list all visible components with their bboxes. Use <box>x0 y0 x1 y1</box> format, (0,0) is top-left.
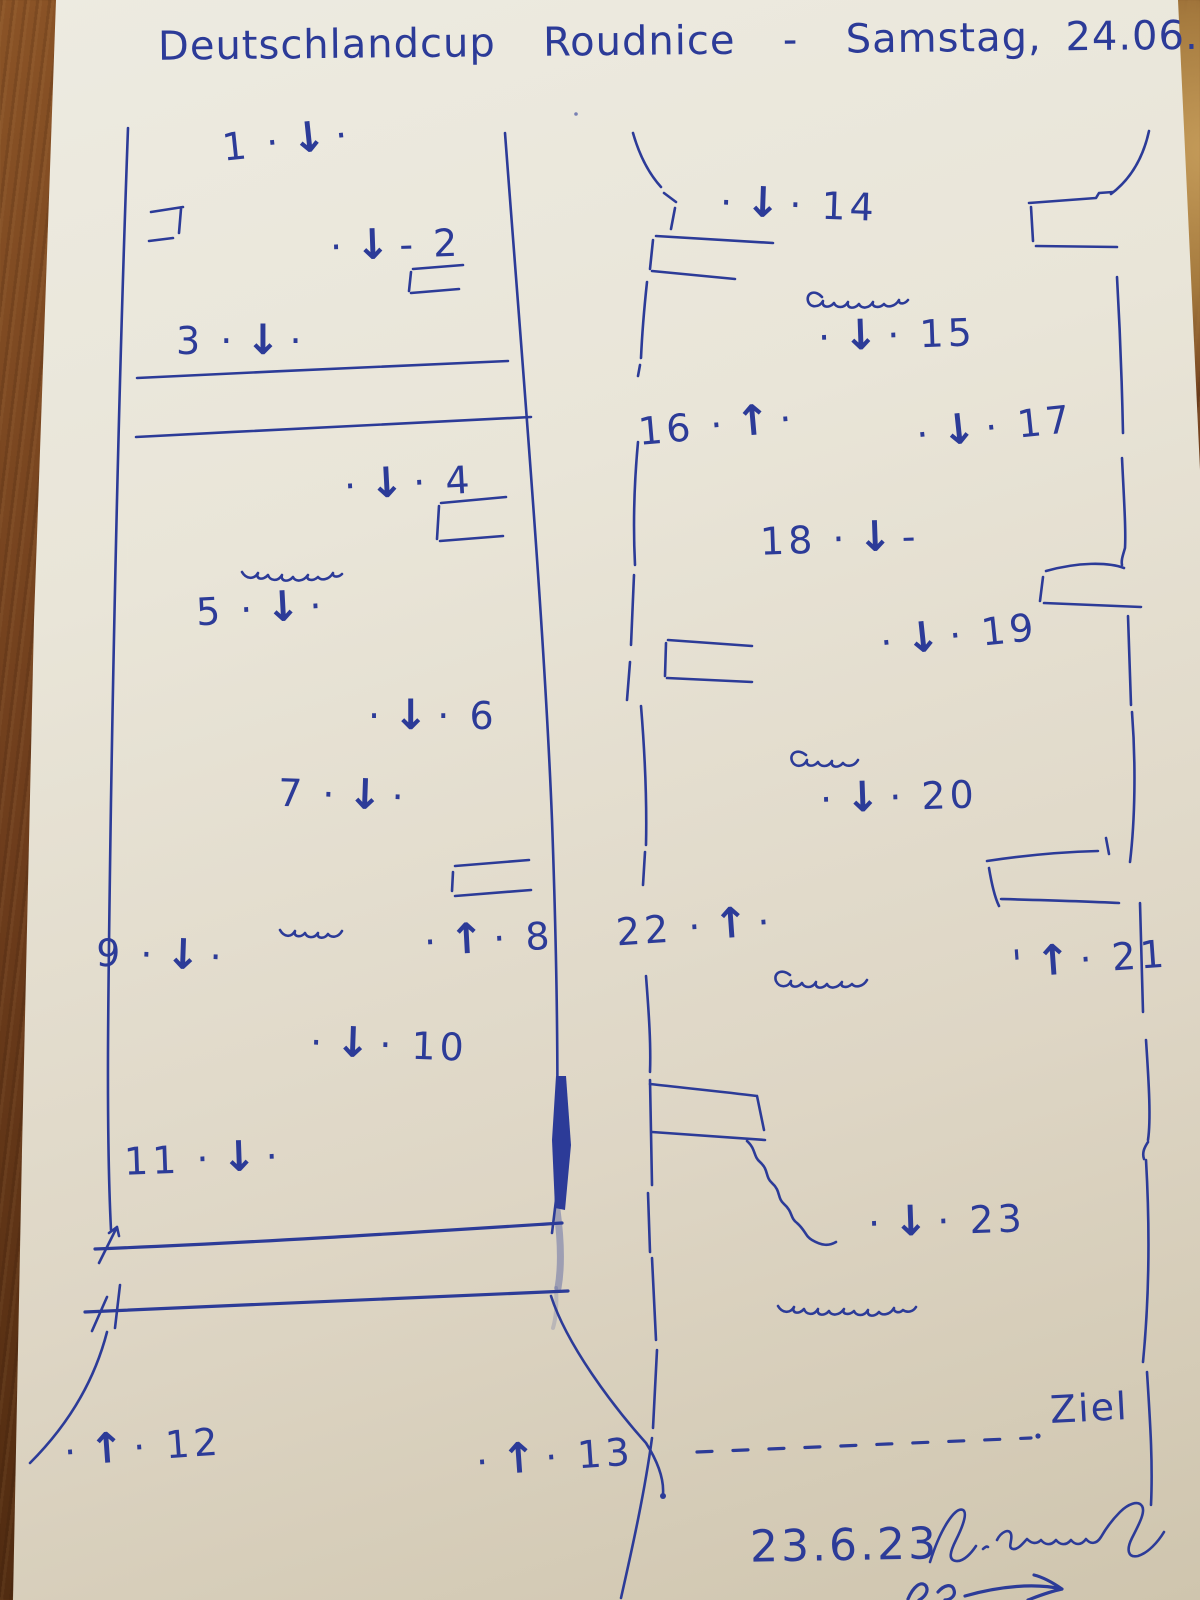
gate-bracket <box>1029 192 1117 247</box>
downstream-arrow-icon: ↓ <box>368 461 405 505</box>
gate-number-suffix: - 2 <box>399 222 462 268</box>
gate-number-prefix: ' <box>1011 942 1028 987</box>
weir-line <box>136 417 531 437</box>
gate-number-suffix: · 4 <box>412 459 475 506</box>
gate-number-suffix: · 6 <box>437 695 497 739</box>
plan-date: 23.6.23 <box>750 1518 940 1572</box>
gate-number-suffix: · 13 <box>544 1431 635 1481</box>
gate-bracket <box>650 1084 765 1140</box>
gate-number-prefix: 7 · <box>277 772 339 818</box>
dashed-finish-line <box>697 1438 1031 1452</box>
gate-15: ·↓· 15 <box>817 311 976 360</box>
gate-number-prefix: 11 · <box>123 1138 213 1185</box>
gate-number-suffix: · 23 <box>937 1197 1027 1244</box>
gate-11: 11 ·↓· <box>123 1135 282 1184</box>
gate-number-suffix: · <box>209 936 227 980</box>
ink-drip <box>553 1288 556 1328</box>
downstream-arrow-icon: ↓ <box>892 1200 929 1243</box>
gate-bracket <box>987 838 1119 906</box>
signature-scribble <box>930 1503 1164 1562</box>
pen-dot <box>1035 1433 1040 1438</box>
gate-number-suffix: · 12 <box>132 1421 223 1471</box>
upstream-arrow-icon: ↑ <box>733 398 772 443</box>
gate-5: 5 ·↓· <box>195 585 327 635</box>
gate-20: ·↓· 20 <box>819 773 978 822</box>
upstream-arrow-icon: ↑ <box>88 1426 126 1470</box>
gate-number-prefix: 9 · <box>95 932 157 978</box>
downstream-arrow-icon: ↓ <box>393 694 428 736</box>
gate-number-prefix: 18 · <box>759 518 849 565</box>
gate-number-prefix: 5 · <box>195 588 258 635</box>
downstream-arrow-icon: ↓ <box>221 1135 258 1178</box>
gate-number-prefix: 22 · <box>615 905 706 955</box>
downstream-arrow-icon: ↓ <box>347 773 384 816</box>
gate-number-prefix: · <box>878 621 899 666</box>
gate-number-prefix: 3 · <box>176 320 236 364</box>
left-bank-line <box>108 128 128 1230</box>
downstream-arrow-icon: ↓ <box>289 115 328 160</box>
gate-number-prefix: · <box>719 181 737 225</box>
weir-line <box>85 1291 568 1312</box>
pen-dot <box>660 1493 666 1499</box>
downstream-arrow-icon: ↓ <box>354 223 391 266</box>
gate-number-prefix: 16 · <box>636 403 728 454</box>
right-channel-right-bank <box>987 131 1152 1505</box>
downstream-arrow-icon: ↓ <box>939 407 978 452</box>
gate-14: ·↓· 14 <box>719 181 878 230</box>
downstream-arrow-icon: ↓ <box>842 314 879 357</box>
gate-bracket <box>452 860 531 896</box>
water-scribble <box>242 572 342 581</box>
weir-tick <box>115 1285 120 1328</box>
gate-number-prefix: · <box>368 695 384 739</box>
course-drawing <box>0 0 1200 1600</box>
gate-number-suffix: · 15 <box>887 311 977 358</box>
gate-3: 3 ·↓· <box>176 320 306 364</box>
gate-number-prefix: · <box>423 921 441 965</box>
finish-label: Ziel <box>1049 1384 1130 1432</box>
downstream-arrow-icon: ↓ <box>165 933 202 976</box>
downstream-arrow-icon: ↓ <box>844 776 881 819</box>
upstream-arrow-icon: ↑ <box>448 917 485 961</box>
gate-number-suffix: · <box>265 1135 283 1179</box>
gate-number-suffix: · 14 <box>789 184 879 231</box>
gate-number-suffix: · 8 <box>492 915 555 962</box>
gate-2: ·↓- 2 <box>329 222 462 270</box>
signatures <box>908 1503 1164 1600</box>
weir-line <box>95 1223 562 1249</box>
gate-number-suffix: · <box>391 776 409 820</box>
weir-tick <box>92 1297 107 1331</box>
signature-scribble-partial <box>908 1575 1062 1600</box>
gate-number-prefix: · <box>819 778 837 822</box>
gate-number-prefix: · <box>309 1021 327 1065</box>
gate-number-suffix: · 20 <box>889 773 979 820</box>
gate-number-suffix: · 17 <box>983 398 1076 451</box>
gate-6: ·↓· 6 <box>368 695 498 739</box>
water-scribble <box>778 1306 916 1316</box>
gate-7: 7 ·↓· <box>277 772 408 820</box>
weir-tick <box>99 1227 119 1263</box>
left-channel-weirs <box>85 361 568 1331</box>
water-scribble <box>791 752 858 767</box>
gate-number-prefix: · <box>63 1430 82 1475</box>
gate-23: ·↓· 23 <box>867 1197 1026 1246</box>
gate-number-suffix: · 10 <box>379 1024 469 1071</box>
gate-number-prefix: · <box>343 465 361 509</box>
gate-number-suffix: - <box>901 515 920 559</box>
upstream-arrow-icon: ↑ <box>712 901 750 945</box>
ink-blob <box>552 1076 571 1210</box>
gate-bracket <box>149 207 183 241</box>
downstream-arrow-icon: ↓ <box>857 515 894 558</box>
water-scribble-steps <box>747 1141 836 1245</box>
gate-number-prefix: · <box>867 1202 885 1246</box>
gate-18: 18 ·↓- <box>759 515 920 564</box>
gate-number-suffix: · 21 <box>1078 933 1169 983</box>
downstream-arrow-icon: ↓ <box>264 585 301 629</box>
gate-number-prefix: · <box>475 1440 494 1485</box>
gate-8: ·↑· 8 <box>423 915 555 965</box>
gate-number-suffix: · 19 <box>947 606 1040 659</box>
photo-of-course-sketch: Deutschlandcup Roudnice - Samstag, 24.06… <box>0 0 1200 1600</box>
water-scribble <box>775 972 867 988</box>
gate-10: ·↓· 10 <box>309 1021 468 1070</box>
right-bank-line <box>505 133 557 1233</box>
gate-4: ·↓· 4 <box>343 459 475 509</box>
downstream-arrow-icon: ↓ <box>903 615 942 660</box>
water-scribble <box>808 293 908 308</box>
gate-number-suffix: · <box>308 585 326 629</box>
gate-number-prefix: 1 · <box>220 121 285 171</box>
right-channel-left-bank <box>621 133 773 1598</box>
gate-number-prefix: · <box>817 316 835 360</box>
ink-drip <box>557 1210 561 1288</box>
upstream-arrow-icon: ↑ <box>1034 938 1072 982</box>
gate-number-suffix: · <box>756 901 775 946</box>
gate-bracket <box>1040 564 1141 607</box>
gate-number-suffix: · <box>290 320 306 364</box>
upstream-arrow-icon: ↑ <box>500 1436 538 1480</box>
downstream-arrow-icon: ↓ <box>245 319 280 361</box>
gate-bracket <box>409 265 463 293</box>
gate-bracket <box>650 236 773 279</box>
water-scribble <box>280 930 342 938</box>
gate-number-prefix: · <box>914 413 935 458</box>
pen-dot <box>574 112 578 116</box>
downstream-arrow-icon: ↓ <box>334 1021 371 1064</box>
gate-number-prefix: · <box>329 226 347 270</box>
gate-bracket <box>665 640 752 682</box>
gate-9: 9 ·↓· <box>95 932 226 980</box>
downstream-arrow-icon: ↓ <box>744 181 781 224</box>
